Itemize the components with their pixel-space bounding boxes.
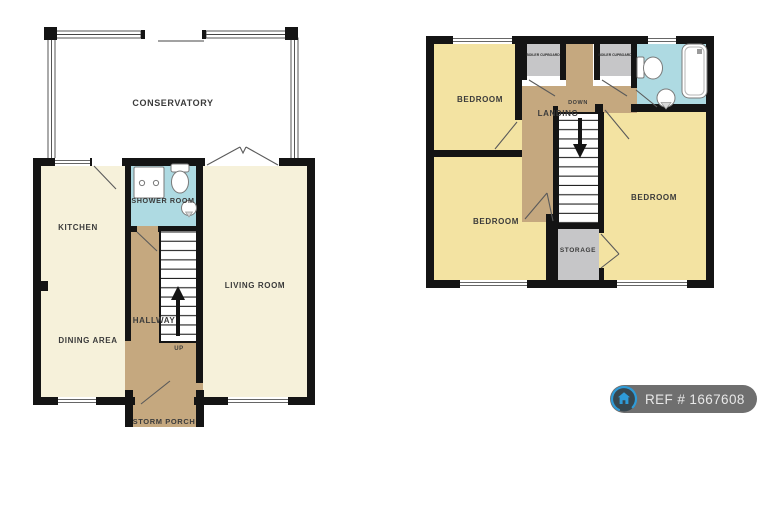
hallway-label: HALLWAY — [133, 316, 176, 325]
storage-label: STORAGE — [560, 247, 596, 254]
shower-room-label: SHOWER ROOM — [131, 196, 194, 205]
ref-number: REF # 1667608 — [645, 392, 745, 407]
toilet-icon — [644, 57, 663, 79]
bedroom-right-label: BEDROOM — [631, 193, 677, 202]
ground-floor-plan: CONSERVATORY KITCHEN SHOWER ROOM LIVING … — [33, 27, 315, 427]
conservatory-glazing — [44, 27, 298, 160]
toilet-tank-icon — [637, 57, 644, 78]
shower-icon — [134, 167, 164, 198]
conservatory-label: CONSERVATORY — [132, 98, 213, 108]
floor-plan-image: CONSERVATORY KITCHEN SHOWER ROOM LIVING … — [0, 0, 768, 512]
home-icon — [610, 385, 638, 413]
bathtub-icon — [682, 44, 707, 98]
living-room-label: LIVING ROOM — [225, 281, 285, 290]
bedroom-top-left-label: BEDROOM — [457, 95, 503, 104]
tap-icon — [697, 49, 702, 54]
up-label: UP — [174, 346, 184, 352]
boiler-cupboard-right-label: BOILER CUPBOARD — [598, 53, 632, 57]
ref-badge: REF # 1667608 — [610, 385, 757, 413]
room-kitchen-dining — [41, 166, 125, 397]
toilet-icon — [172, 171, 189, 193]
first-floor-plan: BEDROOM BEDROOM BEDROOM LANDING DOWN BOI… — [426, 36, 714, 288]
floor-plan-canvas: CONSERVATORY KITCHEN SHOWER ROOM LIVING … — [0, 0, 768, 512]
boiler-cupboard-right — [600, 43, 631, 76]
staircase-first — [558, 113, 599, 224]
landing-label: LANDING — [538, 109, 579, 118]
boiler-cupboard-left — [527, 43, 560, 76]
room-storage — [558, 229, 599, 280]
dining-area-label: DINING AREA — [58, 336, 117, 345]
bedroom-bottom-left-label: BEDROOM — [473, 217, 519, 226]
kitchen-label: KITCHEN — [58, 223, 98, 232]
boiler-cupboard-left-label: BOILER CUPBOARD — [526, 53, 560, 57]
shower-door-opening — [137, 226, 158, 232]
staircase-ground — [160, 230, 197, 342]
storm-porch-label: STORM PORCH — [133, 417, 196, 426]
down-label: DOWN — [568, 100, 588, 106]
landing-column — [522, 113, 553, 222]
